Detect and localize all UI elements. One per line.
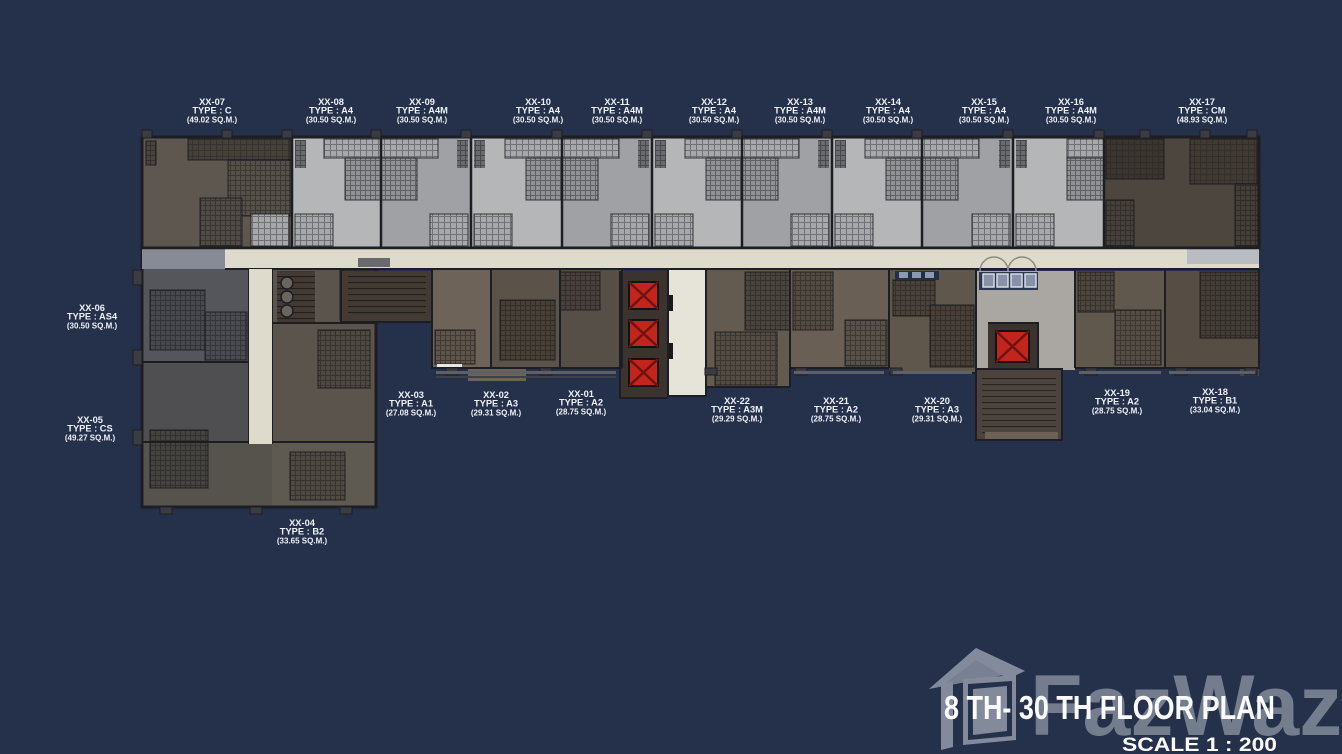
svg-text:(28.75 SQ.M.): (28.75 SQ.M.) [811,414,862,423]
svg-text:(30.50 SQ.M.): (30.50 SQ.M.) [397,115,448,124]
svg-text:TYPE : B2: TYPE : B2 [280,527,324,537]
svg-text:TYPE : A3: TYPE : A3 [474,399,518,409]
svg-text:TYPE : A2: TYPE : A2 [559,398,603,408]
svg-text:(28.75 SQ.M.): (28.75 SQ.M.) [556,407,607,416]
svg-text:(30.50 SQ.M.): (30.50 SQ.M.) [306,115,357,124]
svg-text:TYPE : A4M: TYPE : A4M [1045,106,1097,116]
svg-text:(29.29 SQ.M.): (29.29 SQ.M.) [712,414,763,423]
svg-text:SCALE 1 : 200: SCALE 1 : 200 [1122,735,1277,754]
svg-text:(29.31 SQ.M.): (29.31 SQ.M.) [912,414,963,423]
svg-text:TYPE : A2: TYPE : A2 [1095,397,1139,407]
svg-text:TYPE : A4M: TYPE : A4M [591,106,643,116]
svg-text:TYPE : A1: TYPE : A1 [389,399,433,409]
svg-text:TYPE : A4: TYPE : A4 [516,106,561,116]
svg-text:TYPE : A4: TYPE : A4 [962,106,1007,116]
svg-text:(33.04 SQ.M.): (33.04 SQ.M.) [1190,405,1241,414]
svg-text:(33.65 SQ.M.): (33.65 SQ.M.) [277,536,328,545]
svg-text:(49.27 SQ.M.): (49.27 SQ.M.) [65,433,116,442]
svg-text:TYPE : B1: TYPE : B1 [1193,396,1237,406]
svg-text:(28.75 SQ.M.): (28.75 SQ.M.) [1092,406,1143,415]
svg-text:TYPE : A3: TYPE : A3 [915,405,959,415]
svg-text:TYPE : A4M: TYPE : A4M [396,106,448,116]
svg-text:(30.50 SQ.M.): (30.50 SQ.M.) [863,115,914,124]
svg-text:8 TH- 30 TH FLOOR PLAN: 8 TH- 30 TH FLOOR PLAN [944,689,1275,726]
svg-text:TYPE : A2: TYPE : A2 [814,405,858,415]
svg-text:TYPE : CM: TYPE : CM [1178,106,1225,116]
svg-text:TYPE : AS4: TYPE : AS4 [67,312,118,322]
svg-text:(30.50 SQ.M.): (30.50 SQ.M.) [67,321,118,330]
svg-text:(48.93 SQ.M.): (48.93 SQ.M.) [1177,115,1228,124]
svg-text:(29.31 SQ.M.): (29.31 SQ.M.) [471,408,522,417]
svg-text:(30.50 SQ.M.): (30.50 SQ.M.) [775,115,826,124]
svg-text:TYPE : A4M: TYPE : A4M [774,106,826,116]
svg-text:(30.50 SQ.M.): (30.50 SQ.M.) [592,115,643,124]
svg-text:(30.50 SQ.M.): (30.50 SQ.M.) [513,115,564,124]
svg-text:TYPE : A3M: TYPE : A3M [711,405,763,415]
svg-text:TYPE : A4: TYPE : A4 [866,106,911,116]
svg-text:TYPE : A4: TYPE : A4 [692,106,737,116]
svg-text:(49.02 SQ.M.): (49.02 SQ.M.) [187,115,238,124]
svg-text:(30.50 SQ.M.): (30.50 SQ.M.) [959,115,1010,124]
svg-text:TYPE : CS: TYPE : CS [67,424,112,434]
svg-text:(27.08 SQ.M.): (27.08 SQ.M.) [386,408,437,417]
svg-text:TYPE : C: TYPE : C [192,106,232,116]
svg-text:TYPE : A4: TYPE : A4 [309,106,354,116]
svg-text:(30.50 SQ.M.): (30.50 SQ.M.) [1046,115,1097,124]
svg-text:(30.50 SQ.M.): (30.50 SQ.M.) [689,115,740,124]
